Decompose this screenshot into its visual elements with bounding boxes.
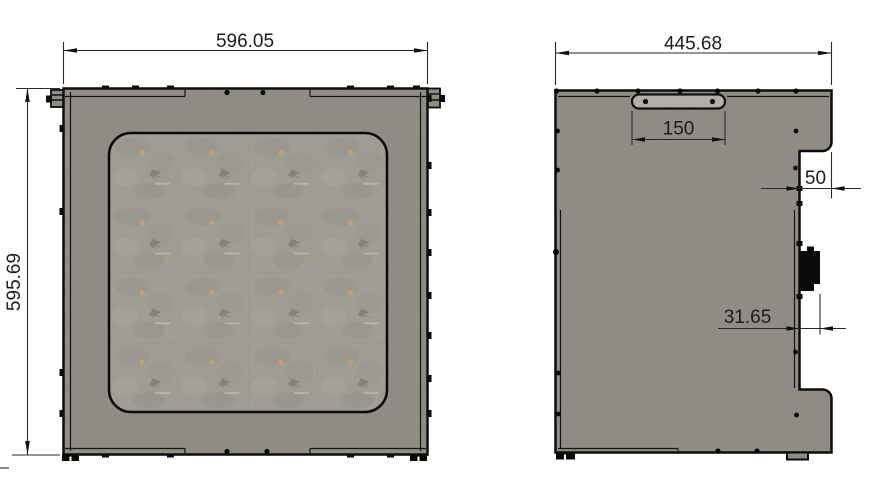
handle-screw-right: [710, 99, 715, 104]
front-height-label: 595.69: [4, 253, 25, 311]
side-view: [553, 88, 833, 459]
drawing-canvas: 596.05 595.69 445.68 150 50 31.65: [0, 0, 889, 487]
front-width-label: 596.05: [216, 31, 274, 52]
side-panel-grain: [555, 90, 833, 454]
front-hinge-top-left: [46, 90, 64, 107]
notch-depth-label: 50: [805, 168, 826, 189]
side-connector: [797, 186, 821, 299]
front-view: [46, 86, 445, 462]
front-window-grain: [109, 133, 387, 412]
cad-drawing: 596.05 595.69 445.68 150 50 31.65: [0, 0, 889, 487]
side-width-label: 445.68: [664, 34, 722, 55]
handle-width-label: 150: [663, 119, 695, 140]
handle-screw-left: [643, 99, 648, 104]
connector-offset-label: 31.65: [724, 307, 772, 328]
